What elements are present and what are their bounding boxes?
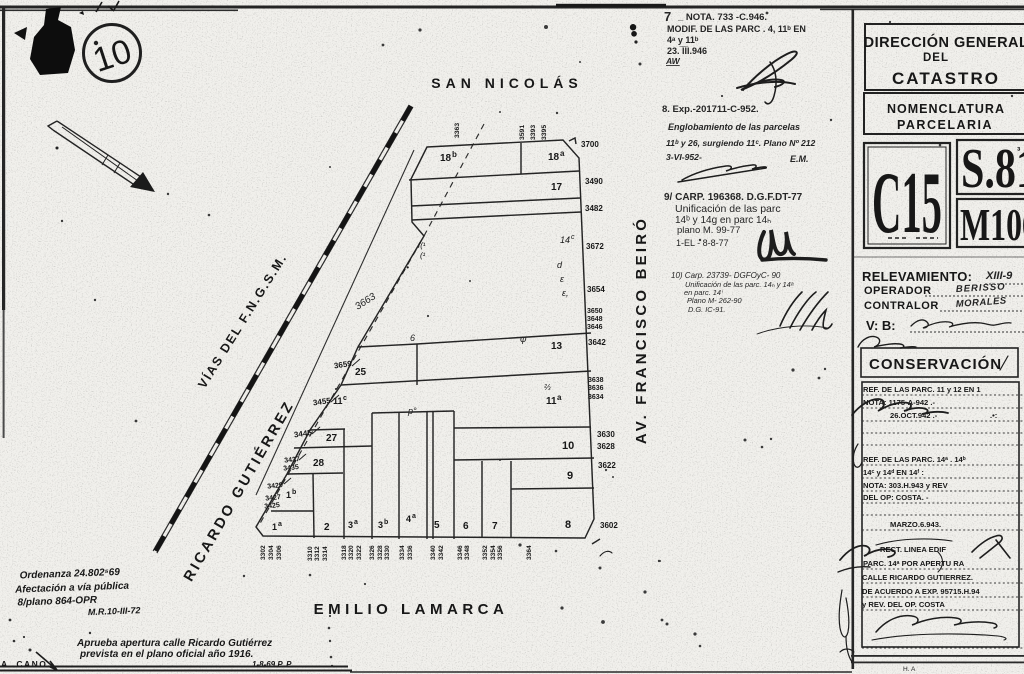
- svg-text:E.M.: E.M.: [790, 154, 809, 164]
- svg-text:RELEVAMIENTO:: RELEVAMIENTO:: [862, 269, 972, 284]
- svg-text:11ᵇ y 26, surgiendo 11ᶜ. Plan: 11ᵇ y 26, surgiendo 11ᶜ. Plano Nº 212: [666, 138, 816, 148]
- svg-text:6: 6: [463, 521, 469, 532]
- svg-text:DEL OP: COSTA. -: DEL OP: COSTA. -: [863, 493, 929, 502]
- svg-text:3336: 3336: [407, 545, 414, 560]
- svg-text:6: 6: [410, 333, 415, 343]
- svg-text:S.81: S.81: [961, 138, 1024, 200]
- svg-text:10: 10: [562, 440, 574, 452]
- svg-text:1: 1: [272, 522, 277, 532]
- svg-text:plano M. 99-77: plano M. 99-77: [677, 225, 740, 236]
- svg-text:3342: 3342: [438, 545, 445, 560]
- svg-text:V: B:: V: B:: [866, 318, 896, 333]
- svg-text:3654: 3654: [587, 285, 605, 294]
- svg-text:3591: 3591: [519, 125, 526, 140]
- svg-text:p°: p°: [407, 406, 417, 416]
- svg-text:3638: 3638: [588, 377, 604, 384]
- svg-text:3602: 3602: [600, 521, 618, 530]
- svg-text:18: 18: [440, 153, 452, 164]
- svg-text:c: c: [343, 395, 347, 402]
- svg-text:MODIF. DE LAS PARC . 4, 11ᵇ EN: MODIF. DE LAS PARC . 4, 11ᵇ EN: [667, 24, 806, 34]
- svg-text:a: a: [412, 513, 416, 520]
- svg-text:3636: 3636: [588, 385, 604, 392]
- svg-text:CALLE RICARDO GUTIERREZ.: CALLE RICARDO GUTIERREZ.: [862, 573, 973, 582]
- svg-text:3356: 3356: [497, 545, 504, 560]
- svg-text:DE ACUERDO A EXP. 95715.H.94: DE ACUERDO A EXP. 95715.H.94: [862, 587, 980, 596]
- svg-text:M.R.10-III-72: M.R.10-III-72: [88, 605, 141, 617]
- svg-text:3: 3: [348, 520, 353, 530]
- svg-text:AV. FRANCISCO BEIRÓ: AV. FRANCISCO BEIRÓ: [632, 216, 650, 444]
- svg-text:XIII-9: XIII-9: [985, 270, 1013, 282]
- svg-text:D.G. IC-91.: D.G. IC-91.: [688, 305, 725, 314]
- svg-text:b: b: [292, 489, 296, 496]
- svg-text:3650: 3650: [587, 308, 603, 315]
- svg-text:a: a: [557, 393, 562, 402]
- svg-text:25: 25: [355, 367, 367, 378]
- svg-text:3326: 3326: [369, 545, 376, 560]
- svg-text:28: 28: [313, 458, 325, 469]
- svg-text:1-8-69 P. P.: 1-8-69 P. P.: [252, 660, 293, 669]
- svg-text:3306: 3306: [276, 545, 283, 560]
- svg-text:prevista en el plano oficial a: prevista en el plano oficial año 1916.: [79, 649, 253, 660]
- svg-text:3364: 3364: [526, 545, 533, 560]
- svg-text:11: 11: [546, 396, 557, 407]
- svg-text:3322: 3322: [356, 545, 363, 560]
- svg-text:3628: 3628: [597, 442, 615, 451]
- svg-text:Plano M- 262-90: Plano M- 262-90: [687, 296, 743, 305]
- svg-text:9/ CARP. 196368. D.G.F.DT-77: 9/ CARP. 196368. D.G.F.DT-77: [664, 192, 803, 203]
- svg-text:3314: 3314: [322, 546, 329, 561]
- svg-text:3700: 3700: [581, 140, 599, 149]
- svg-text:SAN NICOLÁS: SAN NICOLÁS: [431, 75, 582, 91]
- svg-text:3634: 3634: [588, 394, 604, 401]
- svg-text:3630: 3630: [597, 430, 615, 439]
- svg-text:3648: 3648: [587, 316, 603, 323]
- svg-text:NOTA: 303.H.943 y REV: NOTA: 303.H.943 y REV: [863, 481, 949, 490]
- svg-text:AW: AW: [665, 56, 681, 66]
- svg-text:3-VI-952-: 3-VI-952-: [666, 152, 702, 162]
- svg-text:4ᵃ y 11ᵇ: 4ᵃ y 11ᵇ: [667, 35, 699, 45]
- svg-text:3646: 3646: [587, 324, 603, 331]
- svg-text:CONSERVACIÓN: CONSERVACIÓN: [869, 355, 1002, 373]
- svg-text:NOMENCLATURA: NOMENCLATURA: [887, 102, 1005, 116]
- svg-text:3346: 3346: [457, 545, 464, 560]
- svg-text:3482: 3482: [585, 204, 603, 213]
- svg-text:(¹: (¹: [420, 251, 426, 260]
- svg-text:PARC. 14ᵃ POR APERTU RA: PARC. 14ᵃ POR APERTU RA: [863, 559, 965, 568]
- svg-text:Unificación de las parc: Unificación de las parc: [675, 203, 781, 215]
- svg-text:PARCELARIA: PARCELARIA: [897, 118, 993, 132]
- svg-text:3672: 3672: [586, 242, 604, 251]
- svg-text:M106: M106: [960, 199, 1024, 250]
- svg-text:y REV. DEL OP. COSTA: y REV. DEL OP. COSTA: [862, 600, 945, 609]
- svg-text:5: 5: [434, 520, 440, 531]
- svg-text:DIRECCIÓN GENERAL: DIRECCIÓN GENERAL: [864, 33, 1024, 51]
- svg-text:,•: ,•: [404, 263, 409, 272]
- svg-text:φ: φ: [520, 334, 527, 345]
- svg-text:3340: 3340: [430, 545, 437, 560]
- svg-text:8: 8: [565, 519, 571, 531]
- svg-text:2: 2: [324, 522, 330, 533]
- svg-text:8. Exp.-201711-C-952.: 8. Exp.-201711-C-952.: [662, 104, 759, 115]
- svg-text:EMILIO LAMARCA: EMILIO LAMARCA: [314, 601, 509, 618]
- svg-text:1: 1: [286, 490, 291, 500]
- svg-text:3304: 3304: [268, 545, 275, 560]
- svg-text:3642: 3642: [588, 338, 606, 347]
- svg-text:REF. DE LAS PARC. 11 y 12 EN 1: REF. DE LAS PARC. 11 y 12 EN 1: [863, 385, 981, 394]
- svg-text:3352: 3352: [482, 545, 489, 560]
- svg-text:CONTRALOR: CONTRALOR: [864, 300, 939, 312]
- svg-text:Aprueba apertura calle Ricardo: Aprueba apertura calle Ricardo Gutiérrez: [76, 638, 272, 649]
- svg-text:c: c: [571, 234, 575, 241]
- svg-text:a: a: [560, 149, 565, 158]
- svg-text:a: a: [354, 519, 358, 526]
- svg-text:7: 7: [664, 9, 671, 24]
- svg-text:27: 27: [326, 433, 338, 444]
- svg-text:Englobamiento de las parcelas: Englobamiento de las parcelas: [668, 122, 800, 132]
- svg-text:3320: 3320: [348, 545, 355, 560]
- svg-text:H. A: H. A: [903, 666, 916, 673]
- svg-text:3354: 3354: [490, 545, 497, 560]
- svg-text:11: 11: [333, 396, 343, 406]
- svg-text:REF. DE LAS PARC. 14ᵃ . 14ᵇ: REF. DE LAS PARC. 14ᵃ . 14ᵇ: [863, 455, 966, 464]
- svg-text:3318: 3318: [341, 545, 348, 560]
- svg-text:4: 4: [406, 514, 411, 524]
- svg-text:DEL: DEL: [923, 52, 949, 64]
- svg-text:3330: 3330: [384, 545, 391, 560]
- svg-text:a: a: [278, 521, 282, 528]
- svg-text:3363: 3363: [454, 123, 461, 138]
- svg-text:1-EL - 8-8-77: 1-EL - 8-8-77: [676, 238, 729, 248]
- svg-text:3348: 3348: [464, 545, 471, 560]
- svg-text:3622: 3622: [598, 461, 616, 470]
- svg-text:7: 7: [492, 521, 498, 532]
- svg-text:17: 17: [551, 182, 563, 193]
- svg-text:⅔: ⅔: [544, 383, 551, 392]
- svg-text:3302: 3302: [260, 545, 267, 560]
- svg-text:OPERADOR: OPERADOR: [864, 285, 932, 297]
- svg-text:3395: 3395: [541, 125, 548, 140]
- svg-text:3328: 3328: [377, 545, 384, 560]
- svg-text:3490: 3490: [585, 177, 603, 186]
- svg-text:3310: 3310: [307, 546, 314, 561]
- svg-text:3: 3: [378, 520, 383, 530]
- svg-text:ε,: ε,: [562, 288, 568, 298]
- svg-text:.•:: .•:: [990, 411, 997, 420]
- svg-text:b: b: [384, 519, 388, 526]
- svg-text:3312: 3312: [314, 546, 321, 561]
- svg-text:13: 13: [551, 341, 563, 352]
- svg-text:3393: 3393: [530, 125, 537, 140]
- svg-text:18: 18: [548, 152, 560, 163]
- svg-text:9: 9: [567, 470, 573, 482]
- svg-text:10) Carp. 23739- DGFOyC- 90: 10) Carp. 23739- DGFOyC- 90: [671, 271, 781, 280]
- svg-text:3334: 3334: [399, 545, 406, 560]
- svg-text:14ᶜ y 14ᵈ EN 14ᶠ :: 14ᶜ y 14ᵈ EN 14ᶠ :: [863, 468, 924, 477]
- svg-text:CATASTRO: CATASTRO: [892, 69, 1000, 88]
- svg-text:f(¹: f(¹: [418, 241, 426, 250]
- svg-text:14: 14: [560, 235, 570, 245]
- svg-text:23. ̅I̅I̅I.946: 23. ̅I̅I̅I.946: [667, 46, 707, 56]
- svg-text:MARZO.6.943.: MARZO.6.943.: [890, 520, 941, 529]
- svg-text:RECT. LINEA EDIF: RECT. LINEA EDIF: [880, 545, 946, 554]
- svg-text:_ NOTA. 733 -C.946.: _ NOTA. 733 -C.946.: [677, 12, 767, 23]
- svg-text:b: b: [452, 150, 457, 159]
